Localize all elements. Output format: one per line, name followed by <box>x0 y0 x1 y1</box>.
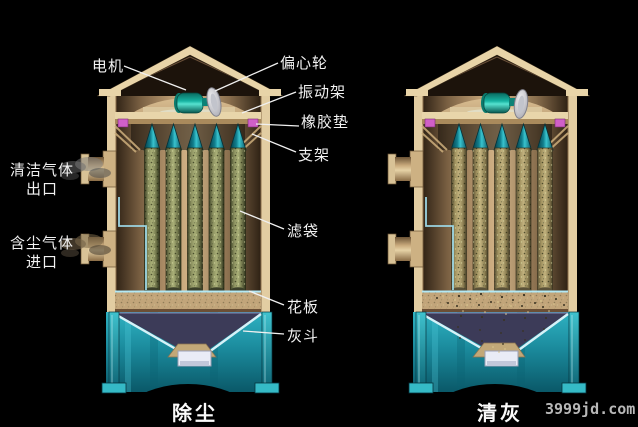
label-dust-gas-line2: 进口 <box>4 253 80 272</box>
filter-bag <box>166 148 181 294</box>
rubber-pad-right <box>555 119 565 127</box>
filter-bags <box>451 124 553 294</box>
tower-ash-cleaning <box>388 46 590 427</box>
vibration-frame-beam-shadow <box>115 119 261 124</box>
label-motor: 电机 <box>92 58 124 75</box>
filter-bag <box>516 148 531 294</box>
foot-left <box>102 383 126 393</box>
tube-sheet <box>115 291 261 312</box>
label-vibration-frame: 振动架 <box>298 84 346 101</box>
dust-gas-inlet-pipe <box>388 231 423 267</box>
discharge-chute-shade <box>180 361 209 366</box>
diagram-stage: 电机 偏心轮 振动架 橡胶垫 支架 清洁气体 出口 含尘气体 进口 滤袋 花板 … <box>0 0 638 427</box>
rubber-pad-left <box>118 119 128 127</box>
filter-bag <box>473 148 488 294</box>
support-leg-right <box>262 312 272 390</box>
filter-bags <box>144 124 246 294</box>
caption-dust-collection: 除尘 <box>172 397 218 426</box>
rubber-pad-left <box>425 119 435 127</box>
support-leg-left <box>416 312 426 390</box>
support-leg-right <box>569 312 579 390</box>
foot-right <box>255 383 279 393</box>
tower-dust-collection <box>60 46 283 427</box>
label-ash-hopper: 灰斗 <box>287 328 319 345</box>
eave-soffit-right <box>259 89 281 96</box>
caption-ash-cleaning: 清灰 <box>477 397 523 426</box>
label-dust-gas-inlet: 含尘气体 进口 <box>4 234 80 272</box>
tube-sheet <box>422 291 568 312</box>
label-support-bracket: 支架 <box>298 147 330 164</box>
rubber-pad-right <box>248 119 258 127</box>
foot-left <box>409 383 433 393</box>
roof-interior <box>104 50 276 96</box>
watermark: 3999jd.com <box>545 400 635 418</box>
eave-soffit-left <box>99 89 121 96</box>
filter-bag <box>495 148 510 294</box>
filter-bag <box>538 148 553 294</box>
clean-gas-outlet-pipe <box>388 151 423 187</box>
label-filter-bag: 滤袋 <box>287 223 319 240</box>
foot-right <box>562 383 586 393</box>
label-rubber-pad: 橡胶垫 <box>301 114 349 131</box>
right-wall <box>261 96 270 312</box>
label-clean-gas-line2: 出口 <box>4 180 80 199</box>
label-clean-gas-outlet: 清洁气体 出口 <box>4 161 80 199</box>
label-clean-gas-line1: 清洁气体 <box>4 161 80 180</box>
filter-bag <box>231 148 246 294</box>
filter-bag <box>188 148 203 294</box>
left-wall <box>107 96 116 312</box>
label-dust-gas-line1: 含尘气体 <box>4 234 80 253</box>
filter-bag <box>209 148 224 294</box>
label-eccentric-wheel: 偏心轮 <box>280 55 328 72</box>
support-leg-left <box>109 312 119 390</box>
label-tube-sheet: 花板 <box>287 299 319 316</box>
